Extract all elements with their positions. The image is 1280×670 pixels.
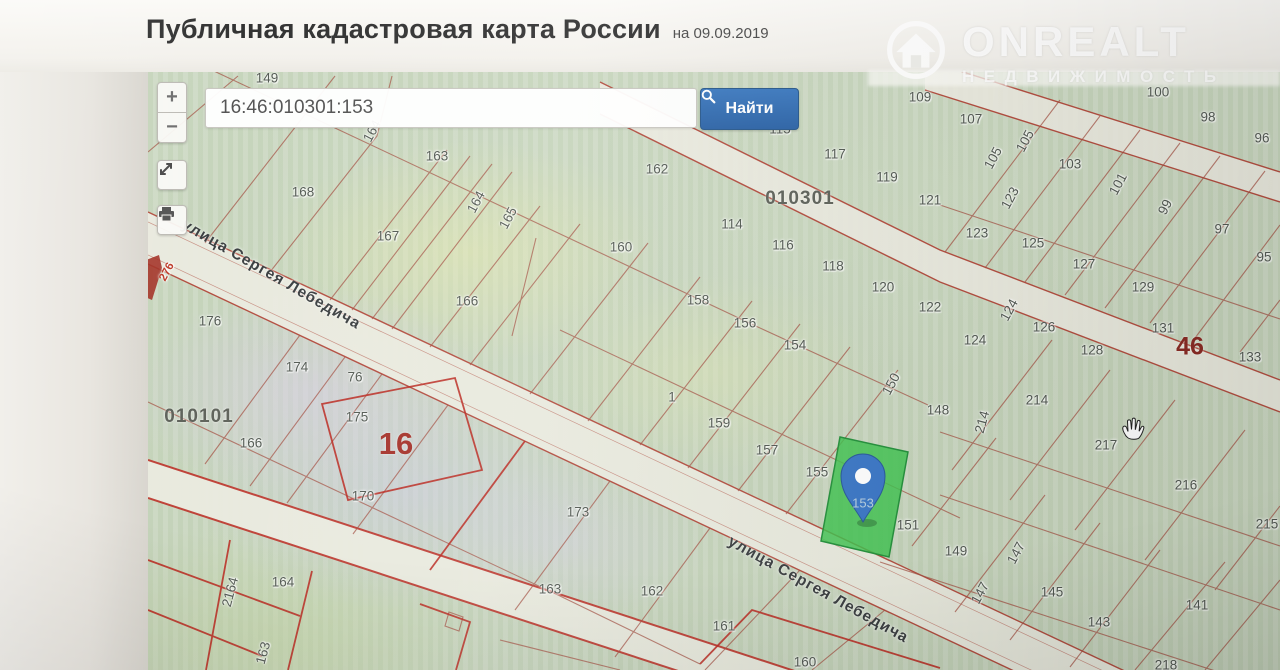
cadastral-map[interactable]: 1491641631621681641651671601661581141161…: [148, 72, 1280, 670]
parcel-label: 216: [1175, 478, 1198, 493]
parcel-label: 95: [1256, 250, 1271, 265]
parcel-label: 158: [687, 293, 710, 308]
parcel-label: 122: [919, 300, 942, 315]
parcel-label: 156: [734, 316, 757, 331]
parcel-label: 105: [981, 145, 1005, 172]
parcel-label: 174: [286, 360, 309, 375]
parcel-label: 159: [708, 416, 731, 431]
parcel-label: 98: [1200, 110, 1215, 125]
parcel-label: 164: [464, 189, 488, 216]
parcel-label: 109: [909, 90, 932, 105]
parcel-label: 167: [377, 229, 400, 244]
page-header: Публичная кадастровая карта России на 09…: [0, 0, 1280, 72]
parcel-label: 107: [960, 112, 983, 127]
parcel-label: 126: [1033, 320, 1056, 335]
parcel-label: 117: [824, 147, 846, 162]
parcel-label: 150: [879, 371, 903, 398]
parcel-label: 214: [972, 409, 992, 435]
printer-icon: [158, 206, 175, 222]
screenshot-root: Публичная кадастровая карта России на 09…: [0, 0, 1280, 670]
parcel-label: 166: [456, 294, 479, 309]
map-labels-layer: 1491641631621681641651671601661581141161…: [148, 72, 1280, 670]
blocknum-label: 16: [379, 426, 413, 462]
parcel-label: 124: [997, 297, 1021, 324]
search-button[interactable]: Найти: [700, 88, 799, 130]
parcel-label: 154: [784, 338, 807, 353]
parcel-label: 149: [256, 71, 279, 86]
parcel-label: 116: [772, 238, 794, 253]
parcel-label: 118: [822, 259, 844, 274]
map-date: на 09.09.2019: [673, 25, 769, 42]
parcel-label: 164: [272, 575, 295, 590]
search-button-label: Найти: [726, 100, 774, 118]
page-title: Публичная кадастровая карта России: [146, 14, 661, 45]
search-input[interactable]: [205, 88, 697, 128]
parcel-label: 162: [646, 162, 669, 177]
parcel-label: 131: [1152, 321, 1175, 336]
parcel-label: 148: [927, 403, 950, 418]
parcel-label: 105: [1013, 128, 1037, 155]
parcel-label: 149: [945, 544, 968, 559]
quarter-label: 010101: [164, 406, 233, 428]
watermark-band: [868, 70, 1280, 86]
parcel-label: 143: [1088, 615, 1111, 630]
parcel-label: 151: [897, 518, 920, 533]
parcel-label: 99: [1155, 197, 1175, 217]
fullscreen-button[interactable]: [157, 160, 187, 190]
parcel-label: 214: [1026, 393, 1049, 408]
parcel-label: 1: [668, 390, 676, 405]
parcel-label: 100: [1147, 85, 1170, 100]
blocknum-label: 46: [1176, 333, 1204, 362]
parcel-label: 119: [876, 170, 898, 185]
parcel-label: 160: [610, 240, 633, 255]
street-label: улица Сергея Лебедича: [725, 533, 912, 647]
search-icon: [701, 89, 716, 104]
parcel-label: 114: [721, 217, 743, 232]
parcel-label: 128: [1081, 343, 1104, 358]
parcel-label: 173: [567, 505, 590, 520]
expand-icon: [158, 161, 174, 177]
selected-label: 153: [852, 496, 874, 511]
parcel-label: 133: [1239, 350, 1262, 365]
parcel-label: 155: [806, 465, 829, 480]
parcel-label: 168: [292, 185, 315, 200]
parcel-label: 145: [1041, 585, 1064, 600]
parcel-label: 161: [713, 619, 736, 634]
parcel-label: 121: [919, 193, 942, 208]
parcel-label: 124: [964, 333, 987, 348]
zoom-out-button[interactable]: −: [157, 112, 187, 143]
parcel-label: 157: [756, 443, 779, 458]
parcel-label: 147: [1004, 540, 1028, 567]
parcel-label: 123: [998, 185, 1022, 212]
parcel-label: 76: [347, 370, 362, 385]
parcel-label: 163: [253, 640, 273, 666]
parcel-label: 141: [1186, 598, 1209, 613]
parcel-label: 175: [346, 410, 369, 425]
parcel-label: 165: [496, 205, 520, 232]
parcel-label: 127: [1073, 257, 1096, 272]
zoom-in-button[interactable]: +: [157, 82, 187, 113]
parcel-label: 176: [199, 314, 222, 329]
parcel-label: 163: [426, 149, 449, 164]
parcel-label: 96: [1254, 131, 1269, 146]
parcel-label: 125: [1022, 236, 1045, 251]
parcel-label: 101: [1106, 171, 1130, 198]
parcel-label: 147: [968, 580, 992, 607]
zoom-control: + −: [157, 82, 187, 143]
parcel-label: 129: [1132, 280, 1155, 295]
left-margin-strip: [0, 72, 148, 670]
parcel-label: 120: [872, 280, 895, 295]
parcel-label: 160: [794, 655, 817, 670]
parcel-label: 162: [641, 584, 664, 599]
parcel-label: 217: [1095, 438, 1118, 453]
parcel-label: 163: [539, 582, 562, 597]
parcel-label: 215: [1256, 517, 1279, 532]
print-button[interactable]: [157, 205, 187, 235]
parcel-label: 97: [1214, 222, 1229, 237]
quarter-label: 010301: [765, 188, 834, 210]
parcel-label: 2164: [219, 576, 241, 609]
parcel-label: 123: [966, 226, 989, 241]
parcel-label: 170: [352, 489, 375, 504]
parcel-label: 218: [1155, 658, 1178, 670]
parcel-label: 166: [240, 436, 263, 451]
parcel-label: 103: [1059, 157, 1082, 172]
parcel-label: 276: [157, 261, 177, 284]
